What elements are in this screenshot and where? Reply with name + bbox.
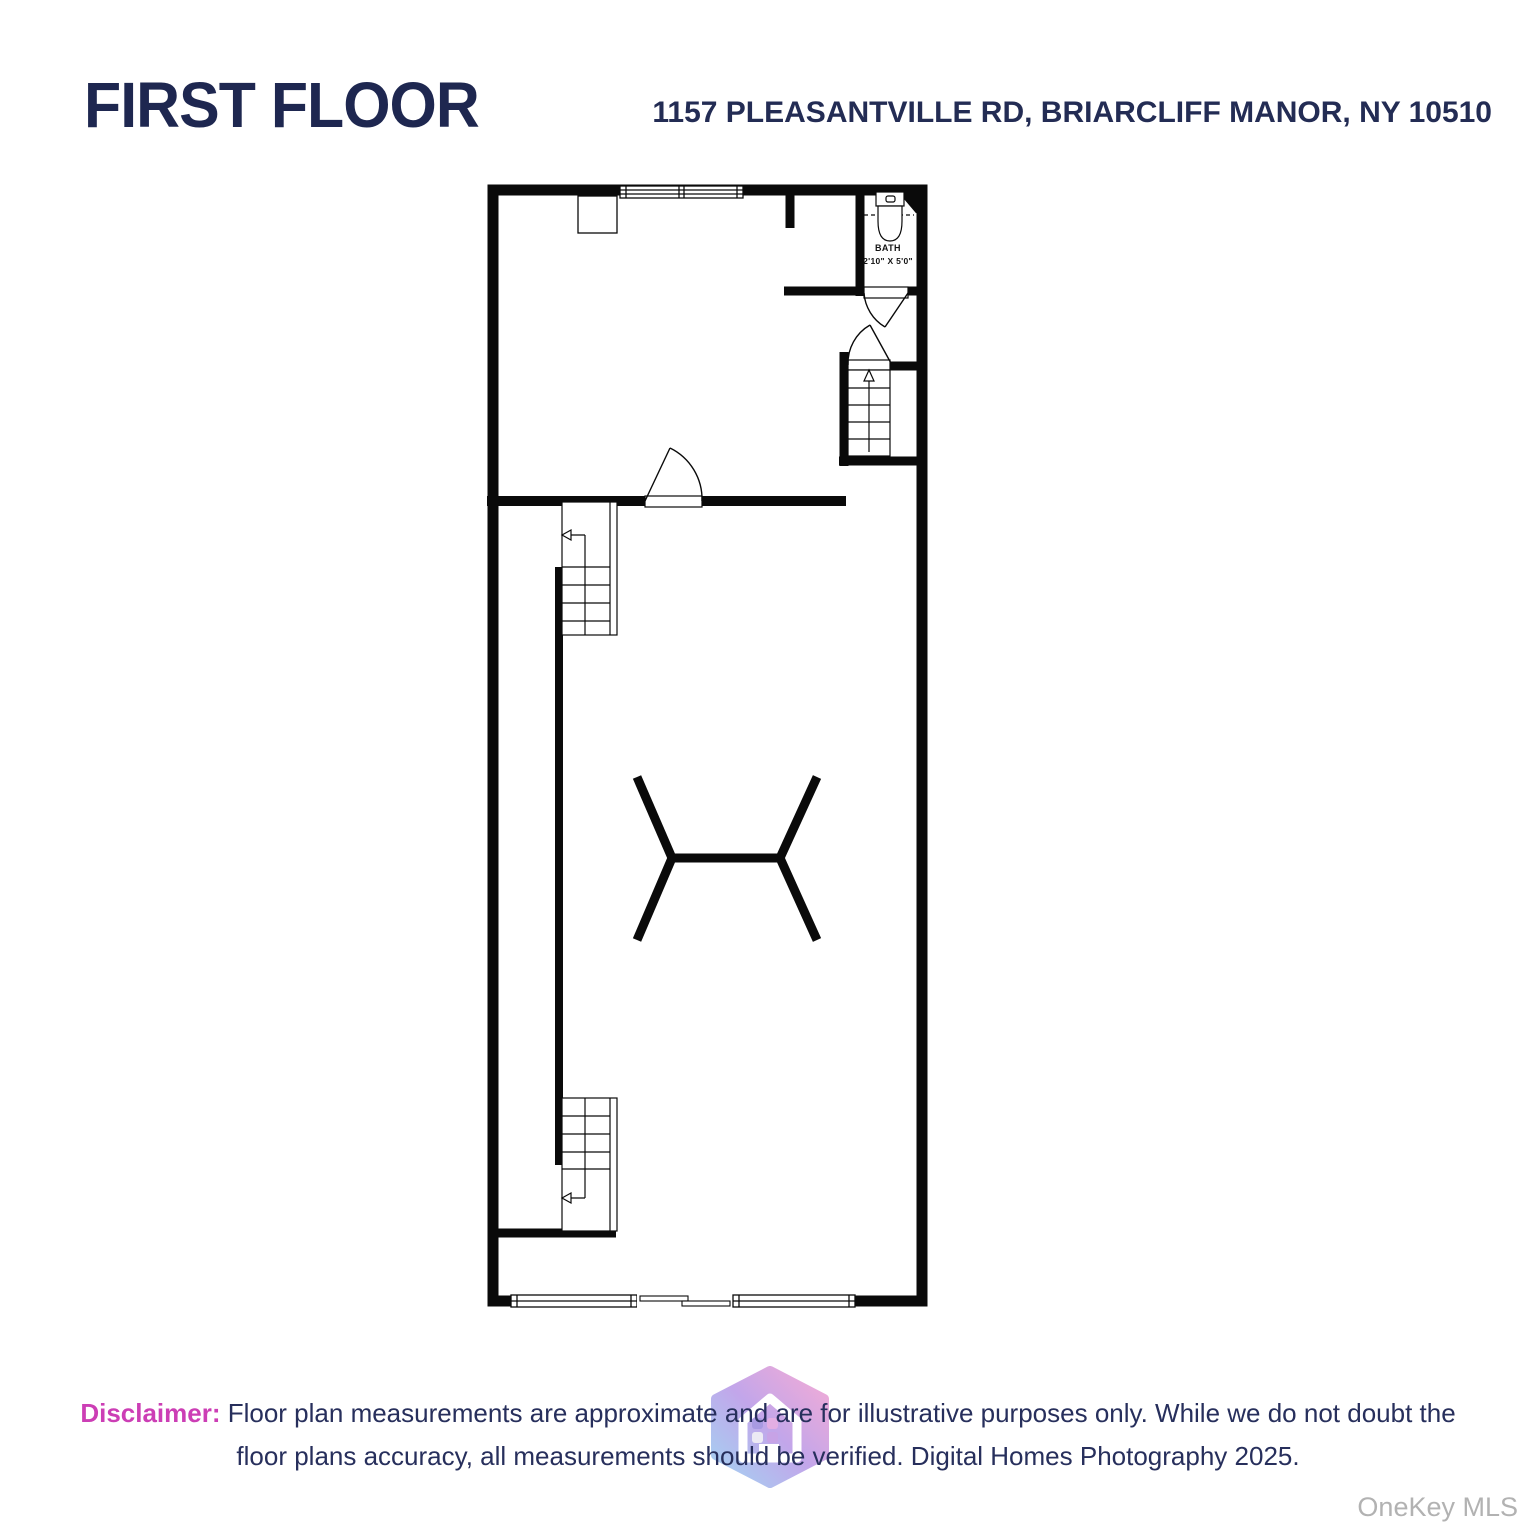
bath-room-dimensions: 2'10" X 5'0" [863,256,913,266]
interior-walls [487,185,927,1233]
disclaimer-label: Disclaimer: [80,1398,220,1428]
stairs-down-lower [562,1098,617,1231]
x-brace-fixture [637,777,817,940]
sliding-door [637,1294,733,1308]
disclaimer: Disclaimer: Floor plan measurements are … [0,1392,1536,1478]
stair-door-swing [848,325,892,365]
floor-plan-page: { "header": { "title": "FIRST FLOOR", "a… [0,0,1536,1536]
window-top [620,186,743,198]
window-bottom-right [733,1295,855,1307]
disclaimer-line-2: floor plans accuracy, all measurements s… [0,1435,1536,1478]
page-title: FIRST FLOOR [84,68,479,142]
property-address: 1157 PLEASANTVILLE RD, BRIARCLIFF MANOR,… [592,96,1492,130]
disclaimer-text-1: Floor plan measurements are approximate … [221,1398,1456,1428]
onekey-mls-watermark: OneKey MLS [1357,1492,1518,1523]
stairs-down-upper [562,502,617,635]
disclaimer-line-1: Disclaimer: Floor plan measurements are … [0,1392,1536,1435]
chimney-box [578,196,617,233]
floor-plan-drawing: BATH 2'10" X 5'0" [480,170,940,1315]
window-bottom-left [511,1295,637,1307]
stairs-up-right [848,360,890,456]
toilet-icon [876,192,904,241]
interior-door-swing [645,448,702,507]
bath-door-swing [864,287,908,327]
bath-room-label: BATH [875,243,901,253]
